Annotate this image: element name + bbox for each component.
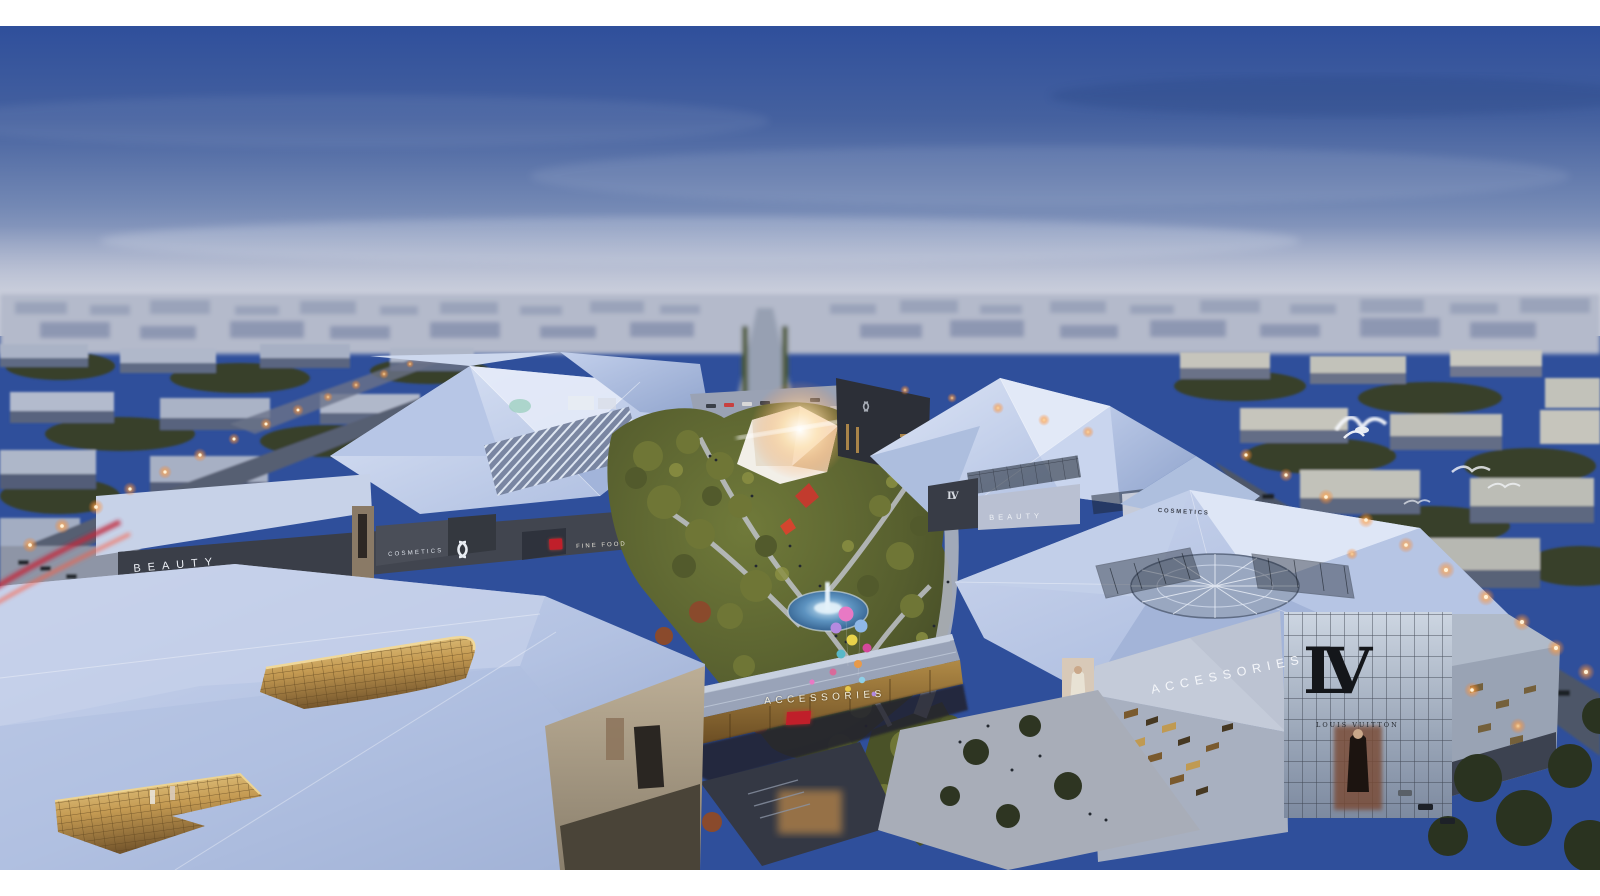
letterbox-bottom bbox=[0, 870, 1600, 896]
lv-monogram-icon: LV bbox=[1303, 640, 1354, 704]
sign-cosmetics-left: COSMETICS bbox=[388, 548, 444, 558]
sign-beauty-mid: BEAUTY bbox=[989, 512, 1043, 521]
red-storefront-sign bbox=[786, 711, 811, 725]
red-brand-logo bbox=[549, 538, 563, 550]
sign-accessories-right: ACCESSORIES bbox=[1150, 653, 1306, 696]
rendering-image: BEAUTY COSMETICS FINE FOOD ACCESSORIES L… bbox=[0, 0, 1600, 896]
letterbox-top bbox=[0, 0, 1600, 26]
sign-lv-small: LV bbox=[947, 492, 957, 502]
sign-accessories-bridge: ACCESSORIES bbox=[764, 690, 886, 707]
sign-cosmetics-right: COSMETICS bbox=[1158, 508, 1210, 517]
sign-fine-food: FINE FOOD bbox=[576, 541, 627, 550]
scene: BEAUTY COSMETICS FINE FOOD ACCESSORIES L… bbox=[0, 26, 1600, 870]
signage-layer: BEAUTY COSMETICS FINE FOOD ACCESSORIES L… bbox=[0, 26, 1600, 870]
sign-louis-vuitton: LOUIS VUITTON bbox=[1316, 722, 1399, 729]
sign-beauty-left: BEAUTY bbox=[133, 557, 220, 575]
